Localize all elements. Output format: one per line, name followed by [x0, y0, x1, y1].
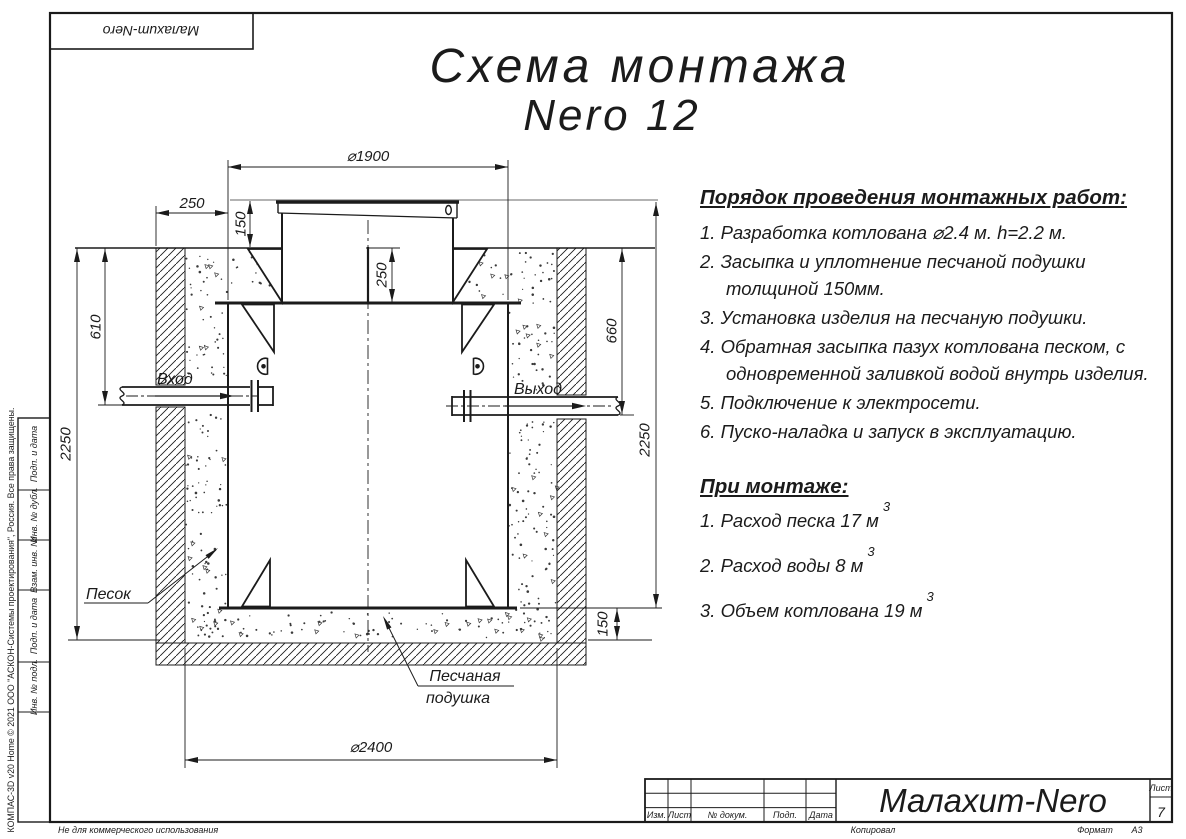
clamp-left	[258, 358, 268, 374]
instruction-item: 1. Разработка котлована ⌀2.4 м. h=2.2 м.	[700, 219, 1182, 246]
dim-lid-height: 150	[233, 211, 250, 237]
footer-copy: Копировал	[851, 825, 896, 835]
top-stamp-text: Малахит-Nero	[102, 23, 199, 39]
cubic-superscript: 3	[883, 499, 890, 514]
lid-handle-detail	[446, 206, 452, 215]
dim-pit-diameter: ⌀2400	[350, 739, 393, 756]
cubic-superscript: 3	[926, 589, 933, 604]
montage-item-text: 1. Расход песка 17 м	[700, 510, 879, 531]
tb-sheet-number: 7	[1157, 804, 1166, 820]
side-stamp-labels: Подп. и дата Инв. № дубл. Взам. инв. № П…	[29, 426, 39, 715]
outlet-label: Выход	[514, 381, 562, 398]
cubic-superscript: 3	[867, 544, 874, 559]
tb-col-izm: Изм.	[647, 810, 666, 820]
sand-fill-speckles	[185, 251, 559, 641]
instruction-item: 2. Засыпка и уплотнение песчаной подушки…	[700, 248, 1182, 302]
dim-neck-depth: 250	[374, 262, 391, 289]
cushion-label-line2: подушка	[426, 690, 490, 707]
tb-col-list: Лист	[667, 810, 692, 820]
cushion-leader-arrow	[383, 616, 392, 630]
sand-leader-arrow	[206, 548, 219, 559]
montage-heading: При монтаже:	[700, 475, 1182, 499]
tb-doc-name: Малахит-Nero	[879, 782, 1107, 819]
instruction-item: 6. Пуско-наладка и запуск в эксплуатацию…	[700, 418, 1182, 445]
instruction-item: 5. Подключение к электросети.	[700, 389, 1182, 416]
stamp-label: Инв. № подл.	[29, 659, 39, 715]
tb-col-dokum: № докум.	[708, 810, 748, 820]
page-subtitle: Nero 12	[523, 91, 701, 140]
dim-inlet-depth: 610	[88, 314, 105, 340]
tank-lid	[276, 202, 459, 218]
montage-block: При монтаже: 1. Расход песка 17 м3 2. Ра…	[700, 475, 1182, 622]
dim-depth-left: 2250	[58, 427, 75, 462]
tb-col-podp: Подп.	[773, 810, 797, 820]
drawing-sheet: Малахит-Nero КОМПАС-3D v20 Home © 2021 О…	[0, 0, 1186, 839]
inlet-label: Вход	[157, 371, 193, 388]
page-title: Схема монтажа	[429, 40, 850, 93]
stamp-label: Взам. инв. №	[29, 537, 39, 593]
dim-side-gap: 250	[178, 195, 205, 212]
footer-format-label: Формат	[1077, 825, 1113, 835]
stamp-label: Подп. и дата	[29, 598, 39, 654]
outlet-flow-arrow	[572, 403, 586, 409]
clamp-right	[474, 358, 484, 374]
footer-format-value: А3	[1130, 825, 1142, 835]
pit-bottom-band	[156, 643, 586, 665]
stamp-label: Подп. и дата	[29, 426, 39, 482]
footer-note: Не для коммерческого использования	[58, 825, 218, 835]
tb-col-data: Дата	[808, 810, 833, 820]
montage-item: 3. Объем котлована 19 м3	[700, 598, 1182, 622]
title-block-text: Изм. Лист № докум. Подп. Дата Малахит-Ne…	[647, 782, 1173, 820]
footer-texts: Не для коммерческого использования Копир…	[58, 825, 1143, 835]
dim-body-diameter: ⌀1900	[347, 148, 390, 165]
instructions-heading: Порядок проведения монтажных работ:	[700, 186, 1182, 210]
montage-item-text: 2. Расход воды 8 м	[700, 555, 863, 576]
stamp-label: Инв. № дубл.	[29, 487, 39, 542]
montage-item-text: 3. Объем котлована 19 м	[700, 600, 922, 621]
kompas-copyright-note: КОМПАС-3D v20 Home © 2021 ООО "АСКОН-Сис…	[6, 408, 16, 833]
montage-item: 1. Расход песка 17 м3	[700, 508, 1182, 532]
drawing-title: Схема монтажа Nero 12	[429, 40, 850, 140]
dim-cushion-thickness: 150	[595, 611, 612, 637]
tb-sheet-label: Лист	[1148, 783, 1173, 793]
cushion-label-line1: Песчаная	[429, 668, 501, 685]
dim-height-right: 2250	[637, 423, 654, 458]
instructions-block: Порядок проведения монтажных работ: 1. Р…	[700, 186, 1182, 643]
tank	[215, 202, 521, 652]
instruction-item: 3. Установка изделия на песчаную подушки…	[700, 304, 1182, 331]
dim-outlet-depth: 660	[604, 318, 621, 344]
sand-label: Песок	[86, 586, 132, 603]
inlet-pipe	[120, 380, 273, 412]
instruction-item: 4. Обратная засыпка пазух котлована песк…	[700, 333, 1182, 387]
montage-item: 2. Расход воды 8 м3	[700, 553, 1182, 577]
